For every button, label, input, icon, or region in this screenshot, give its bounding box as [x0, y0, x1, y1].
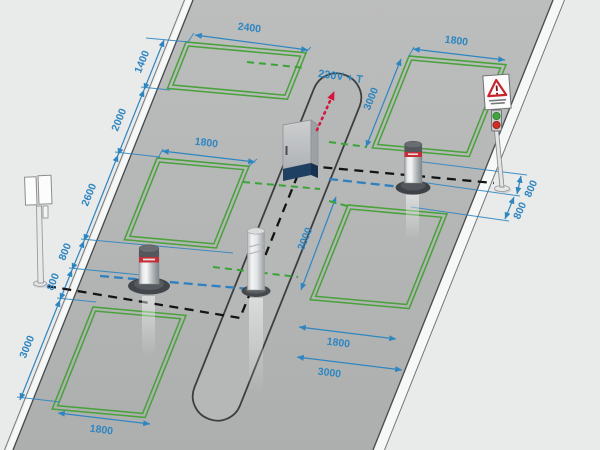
intercom-bracket: [43, 206, 48, 218]
red-light: [493, 121, 500, 128]
green-light: [493, 112, 500, 119]
control-unit-cabinet: [283, 120, 318, 181]
installation-diagram: 230V + T 2400140020002600800800300018001…: [0, 0, 600, 450]
warning-sign: [483, 74, 511, 110]
traffic-light: [492, 110, 502, 131]
intercom-panel-left: [25, 177, 37, 205]
diagram-canvas: 230V + T 2400140020002600800800300018001…: [0, 0, 600, 450]
cabinet-handle: [286, 146, 288, 155]
intercom-panel-right: [38, 175, 52, 204]
